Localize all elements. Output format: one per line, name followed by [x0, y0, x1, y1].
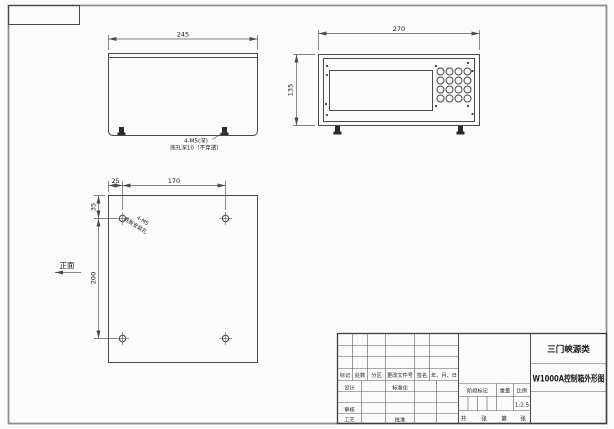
approval-label: 批准: [395, 416, 405, 424]
base-hole-note: 4-M5 底板安装孔: [123, 210, 153, 236]
title-block: 标记 处数 分区 更改文件号 签名 年、月、日 设计 标准化 审核 工艺 批准: [338, 334, 607, 424]
side-view-width-dimension: 245: [109, 31, 258, 51]
drawing-title-section: 三门峡源类 W1000A控制箱外形图: [531, 344, 607, 392]
front-height-dim-text: 135: [287, 84, 295, 96]
front-direction-indicator: 正面: [55, 261, 81, 273]
top-offset-dim-text: 35: [90, 203, 98, 211]
header-count: 处数: [355, 371, 366, 379]
scale-value: 1:2.5: [515, 403, 530, 409]
cad-canvas: 245 4-M5(深) 底孔深10（不穿透）: [0, 0, 614, 429]
side-width-dim-text: 245: [177, 31, 189, 39]
keypad-grid: [437, 68, 471, 102]
stage-scale-section: 阶段标记 重量 比例 1:2.5 共 张 第 张: [459, 384, 531, 423]
stage-mark-label: 阶段标记: [467, 387, 488, 395]
front-label-text: 正面: [60, 261, 75, 270]
weight-label: 重量: [500, 387, 510, 395]
base-view: 25 170 35 200 4-M5 底板安装孔 正面: [55, 177, 258, 363]
hole-span-dim-text: 170: [168, 177, 180, 185]
foot-left: [334, 126, 342, 135]
review-label: 审核: [344, 406, 354, 414]
process-label: 工艺: [344, 417, 354, 424]
side-view: 245 4-M5(深) 底孔深10（不穿透）: [109, 31, 258, 152]
scale-label: 比例: [517, 387, 527, 395]
header-zone: 分区: [371, 371, 381, 379]
header-signature: 签名: [417, 371, 427, 379]
front-view: 270 135: [287, 25, 480, 135]
base-left-dimensions: 35 200: [90, 196, 117, 339]
header-change-doc: 更改文件号: [387, 371, 413, 379]
signature-rows: 设计 标准化 审核 工艺 批准: [338, 381, 459, 424]
foot-left: [118, 127, 126, 135]
front-view-width-dimension: 270: [319, 25, 480, 50]
display-window: [330, 71, 433, 111]
foot-right: [457, 126, 465, 135]
sheets-unit2-label: 张: [520, 415, 526, 423]
side-view-outline: [109, 54, 258, 136]
side-view-hole-note: 4-M5(深) 底孔深10（不穿透）: [170, 132, 225, 152]
standardization-label: 标准化: [392, 384, 408, 392]
mounting-holes: [116, 212, 232, 345]
edge-offset-dim-text: 25: [111, 177, 119, 185]
revision-grid: 标记 处数 分区 更改文件号 签名 年、月、日: [338, 334, 459, 381]
vertical-span-dim-text: 200: [90, 272, 98, 284]
corner-box: [9, 6, 80, 25]
front-width-dim-text: 270: [393, 25, 405, 33]
drawing-title: W1000A控制箱外形图: [533, 374, 605, 385]
mounting-hole: [219, 212, 232, 225]
base-top-dimensions: 25 170: [109, 177, 226, 210]
design-label: 设计: [344, 384, 354, 392]
header-mark: 标记: [340, 371, 350, 379]
header-date: 年、月、日: [431, 371, 457, 379]
front-panel: [324, 59, 475, 122]
company-name: 三门峡源类: [547, 344, 590, 355]
hole-note-line2: 底孔深10（不穿透）: [170, 144, 222, 152]
sheets-total-label: 共: [461, 415, 467, 423]
sheet-ordinal-label: 第: [501, 415, 507, 423]
mounting-hole: [116, 332, 129, 345]
mounting-hole: [219, 332, 232, 345]
drawing-sheet: 245 4-M5(深) 底孔深10（不穿透）: [0, 0, 614, 429]
hole-note-line1: 4-M5(深): [184, 137, 208, 145]
sheets-unit1-label: 张: [481, 415, 487, 423]
front-view-height-dimension: 135: [287, 55, 316, 126]
